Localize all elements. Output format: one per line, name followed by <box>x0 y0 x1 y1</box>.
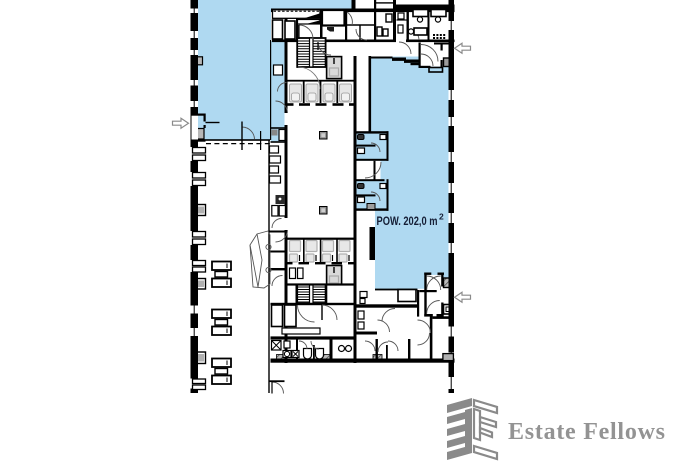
svg-text:POW. 202,0 m: POW. 202,0 m <box>377 214 438 228</box>
svg-text:2: 2 <box>439 212 444 222</box>
svg-text:Estate Fellows: Estate Fellows <box>508 419 665 445</box>
